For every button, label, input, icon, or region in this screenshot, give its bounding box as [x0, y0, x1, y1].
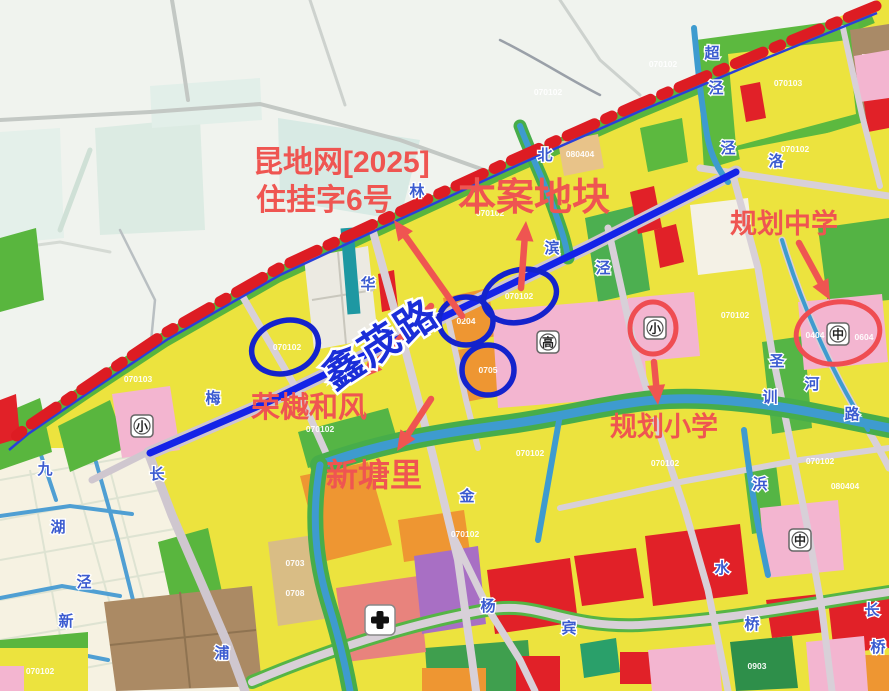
map-name-char: 泾 [708, 79, 723, 97]
svg-text:中: 中 [832, 327, 844, 342]
map-name-char: 泾 [595, 259, 610, 277]
map-name-char: 林 [409, 182, 425, 200]
parcel-code-label: 0708 [286, 588, 305, 598]
map-name-char: 洛 [768, 152, 784, 170]
parcel-code-label: 070102 [26, 666, 55, 676]
map-name-char: 杨 [480, 597, 495, 615]
map-name-char: 滨 [544, 239, 559, 257]
parcel-code-label: 080404 [831, 481, 860, 491]
map-name-char: 新 [58, 612, 73, 630]
parcel-code-label: 070102 [806, 456, 835, 466]
map-name-char: 浦 [214, 644, 229, 662]
parcel-code-label: 070102 [651, 458, 680, 468]
school-icon: 小 [644, 317, 666, 339]
doc-number-line2: 住挂字6号 [256, 183, 393, 217]
parcel-code-label: 070103 [124, 374, 153, 384]
map-name-char: 浜 [752, 475, 767, 493]
project-rongyuehefeng-label: 荣樾和风 [251, 391, 367, 424]
parcel-code-label: 070103 [774, 78, 803, 88]
parcel-code-label: 070102 [534, 87, 563, 97]
parcel-code-label: 0404 [806, 330, 825, 340]
doc-number-line1: 昆地网[2025] [253, 146, 430, 179]
map-name-char: 水 [714, 559, 730, 577]
parcel-code-label: 070102 [649, 59, 678, 69]
school-icon: 中 [789, 529, 811, 551]
map-name-char: 桥 [744, 615, 760, 633]
map-name-char: 梅 [205, 389, 220, 407]
map-canvas: 0701030701020701020701020204070507010207… [0, 0, 889, 691]
parcel-code-label: 070102 [505, 291, 534, 301]
planned-middle-school-label: 规划中学 [730, 208, 838, 239]
parcel-code-label: 0705 [479, 365, 498, 375]
map-name-char: 九 [36, 460, 52, 478]
parcel-code-label: 080404 [566, 149, 595, 159]
map-name-char: 泾 [76, 573, 91, 591]
map-name-char: 桥 [870, 638, 886, 656]
svg-text:中: 中 [794, 533, 806, 548]
parcel-code-label: 070102 [721, 310, 750, 320]
parcel-code-label: 0604 [855, 332, 874, 342]
map-name-char: 路 [844, 405, 860, 423]
parcel-code-label: 070102 [781, 144, 810, 154]
xintangli-label: 新塘里 [326, 457, 422, 493]
hospital-cross-icon [365, 605, 395, 635]
school-icon: 高 [537, 331, 559, 353]
parcel-code-label: 070102 [451, 529, 480, 539]
svg-text:高: 高 [542, 335, 554, 350]
parcel-code-label: 070102 [273, 342, 302, 352]
planning-map-screenshot: 0701030701020701020701020204070507010207… [0, 0, 889, 691]
map-name-char: 长 [864, 601, 880, 619]
school-icon: 小 [131, 415, 153, 437]
hospital-icon-layer [365, 605, 395, 635]
map-name-char: 训 [762, 389, 777, 406]
map-name-char: 金 [458, 487, 475, 505]
parcel-code-label: 070102 [306, 424, 335, 434]
svg-text:小: 小 [136, 419, 148, 434]
site-plot-label: 本案地块 [458, 177, 610, 219]
map-name-char: 圣 [768, 353, 785, 370]
school-icon: 中 [827, 323, 849, 345]
parcel-code-label: 070102 [516, 448, 545, 458]
map-name-char: 超 [703, 44, 720, 62]
svg-text:小: 小 [649, 321, 661, 336]
map-name-char: 宾 [561, 619, 576, 637]
parcel-code-label: 0703 [286, 558, 305, 568]
planned-primary-school-label: 规划小学 [610, 411, 718, 442]
map-name-char: 泾 [720, 139, 735, 157]
map-name-char: 湖 [50, 519, 65, 536]
map-name-char: 华 [360, 275, 375, 293]
map-name-char: 河 [804, 375, 819, 393]
parcel-code-label: 0903 [748, 661, 767, 671]
map-name-char: 长 [149, 465, 165, 483]
map-name-char: 北 [537, 147, 552, 164]
